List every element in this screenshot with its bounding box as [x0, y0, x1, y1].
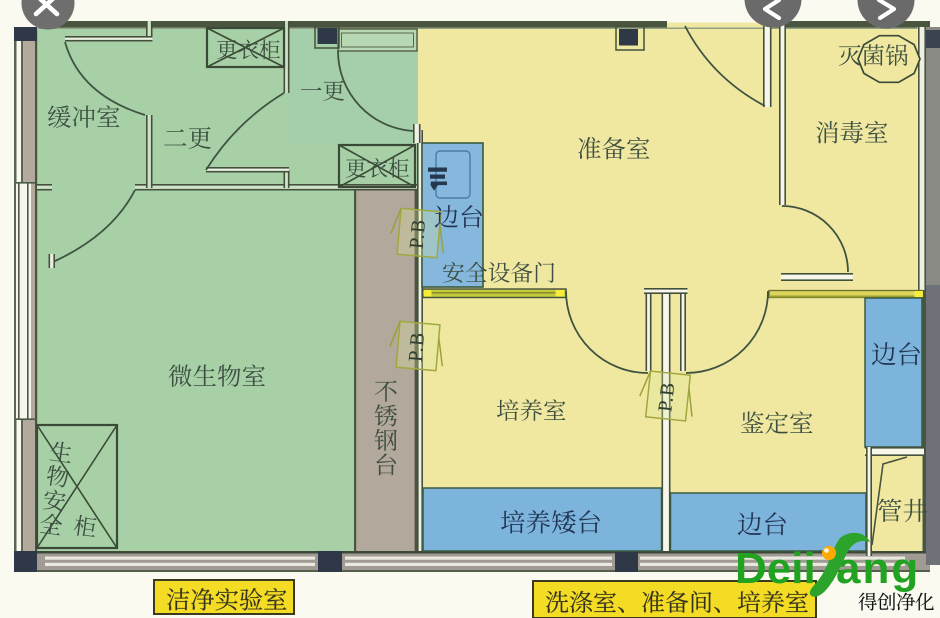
svg-text:Deii: Deii [735, 544, 816, 593]
svg-text:P.B: P.B [406, 218, 431, 250]
svg-text:P.B: P.B [654, 381, 679, 413]
svg-text:ang: ang [836, 544, 920, 593]
svg-text:P.B: P.B [405, 331, 430, 363]
